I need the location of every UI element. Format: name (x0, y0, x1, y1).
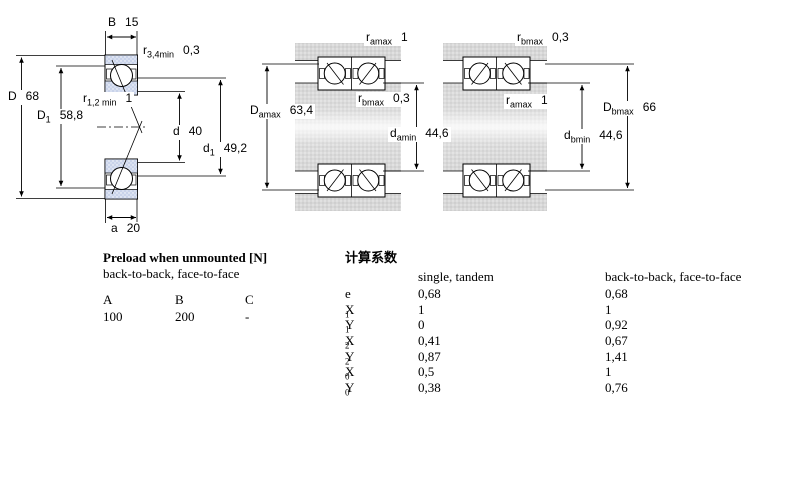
paired-bearing-figure-b (443, 43, 634, 211)
preload-value-c: - (245, 309, 249, 324)
factor-row-x1: X1 1 1 (345, 302, 765, 318)
outer-ring (105, 55, 138, 65)
dim-label-Dbmax: Dbmax66 (601, 101, 658, 116)
preload-value-row: 100 200 - (103, 309, 333, 326)
bearing-datasheet-page: B15 r3,4min0,3 D68 D158,8 r1,2 min1 d40 … (0, 0, 800, 500)
factor-row-x0: X0 0,5 1 (345, 364, 765, 380)
bearing-pair-top (463, 57, 530, 90)
dim-label-B: B15 (106, 16, 140, 31)
factors-title: 计算系数 (345, 250, 765, 265)
factor-row-e: e 0,68 0,68 (345, 286, 765, 302)
factor-row-y1: Y1 0 0,92 (345, 317, 765, 333)
dim-label-Damax: Damax63,4 (248, 104, 315, 119)
bearing-pair-bottom (318, 164, 385, 197)
preload-col-a: A (103, 292, 112, 307)
dim-label-D: D68 (6, 90, 41, 105)
dim-label-D1: D158,8 (35, 109, 85, 124)
dim-label-d: d40 (171, 125, 204, 140)
dim-label-ramax-b: ramax1 (504, 94, 550, 109)
dim-label-dbmin: dbmin44,6 (562, 129, 625, 144)
dim-label-a: a20 (109, 222, 142, 237)
factors-header-row: single, tandem back-to-back, face-to-fac… (345, 269, 765, 286)
preload-col-b: B (175, 292, 184, 307)
preload-value-b: 200 (175, 309, 195, 324)
factors-col-single: single, tandem (418, 269, 494, 284)
dim-label-ramax-a: ramax1 (364, 31, 410, 46)
factor-row-x2: X2 0,41 0,67 (345, 333, 765, 349)
bearing-pair-bottom (463, 164, 530, 197)
preload-title: Preload when unmounted [N] (103, 250, 333, 265)
bearing-top-section (105, 55, 138, 95)
preload-col-c: C (245, 292, 254, 307)
dim-label-rbmax-a: rbmax0,3 (356, 92, 412, 107)
bearing-bottom-section (105, 159, 138, 199)
preload-subtitle: back-to-back, face-to-face (103, 266, 333, 281)
dim-label-d1: d149,2 (201, 142, 249, 157)
dim-label-damin: damin44,6 (388, 127, 451, 142)
dimension-lines (582, 66, 628, 188)
bearing-pair-top (318, 57, 385, 90)
dim-label-r12: r1,2 min1 (81, 92, 134, 107)
factor-row-y0: Y0 0,38 0,76 (345, 380, 765, 396)
dim-label-rbmax-b: rbmax0,3 (515, 31, 571, 46)
preload-header-row: A B C (103, 292, 333, 309)
factors-col-btb: back-to-back, face-to-face (605, 269, 741, 284)
preload-value-a: 100 (103, 309, 123, 324)
factor-row-y2: Y2 0,87 1,41 (345, 349, 765, 365)
dim-label-r34: r3,4min0,3 (141, 44, 202, 59)
calculation-factors-table: 计算系数 single, tandem back-to-back, face-t… (345, 250, 765, 396)
outer-ring (105, 190, 138, 200)
preload-table: Preload when unmounted [N] back-to-back,… (103, 250, 333, 326)
